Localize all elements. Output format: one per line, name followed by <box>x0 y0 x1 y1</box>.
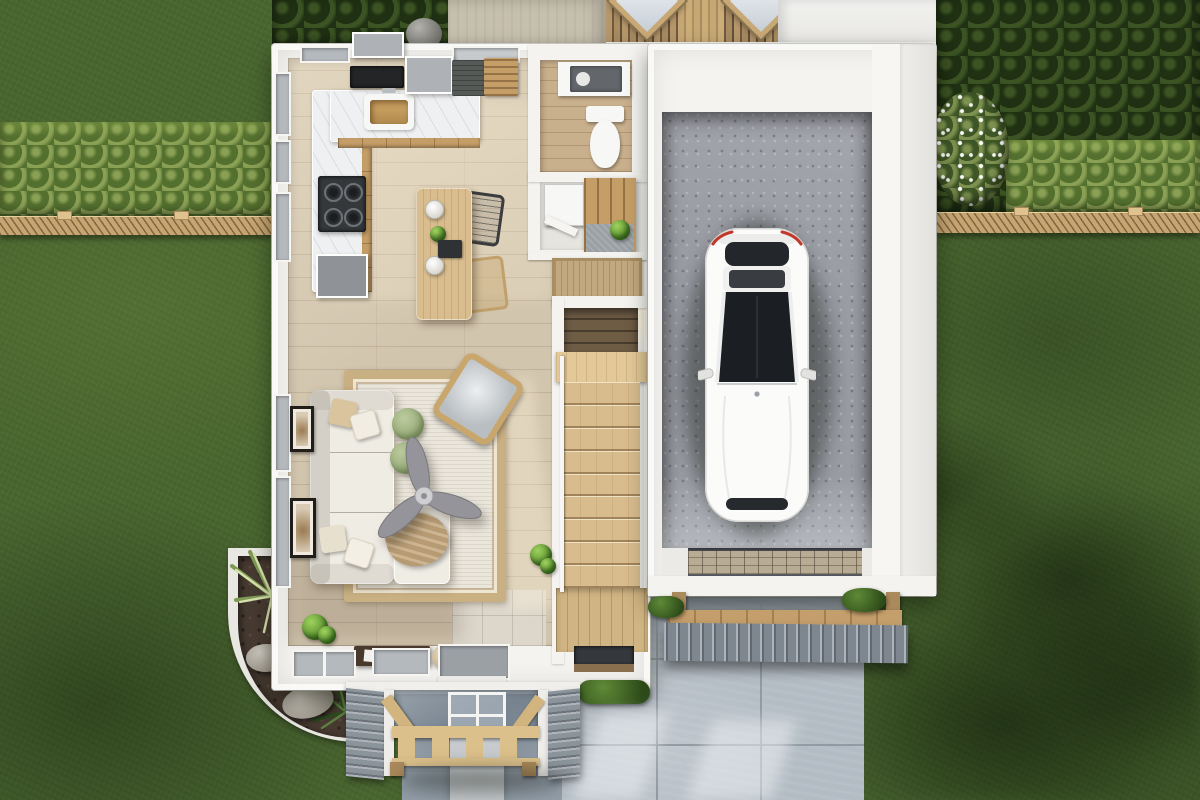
paver-joint <box>656 592 658 800</box>
garage-roof-overhang <box>900 44 936 596</box>
garage <box>648 44 936 596</box>
front-window <box>438 644 510 680</box>
front-window <box>292 650 356 678</box>
cabinet-face <box>338 138 480 148</box>
stair-tread <box>564 405 640 428</box>
garage-door-jamb <box>662 548 688 576</box>
flowering-bush <box>933 92 1009 206</box>
fence-post <box>57 211 72 220</box>
window <box>274 192 291 262</box>
table-tray <box>438 240 462 258</box>
porch-post <box>390 762 404 776</box>
awning-shrub <box>842 588 886 612</box>
throw-pillow <box>318 524 347 553</box>
awning-shrub <box>648 596 684 618</box>
fence-post <box>1014 207 1029 216</box>
range <box>350 66 404 88</box>
hedgerow-left <box>0 122 274 218</box>
skylight-gable <box>723 0 780 39</box>
window <box>274 72 291 136</box>
toilet-bowl <box>590 120 620 168</box>
truss-bottom-chord <box>392 758 540 766</box>
floor-plan-render <box>0 0 1200 800</box>
pendant-light <box>425 256 444 275</box>
wall-oven <box>316 254 368 298</box>
fence-left <box>0 216 274 235</box>
ceiling-fan <box>364 436 484 556</box>
porch-roof-left <box>346 688 384 780</box>
stair-tread <box>564 474 640 497</box>
hedgerow-right <box>1006 140 1200 214</box>
house <box>272 44 650 690</box>
range-hood <box>352 32 404 58</box>
front-door <box>574 646 634 666</box>
front-porch <box>346 680 580 780</box>
front-window <box>372 648 430 676</box>
stair-handrail <box>560 356 564 592</box>
garage-roof-edge <box>778 0 936 46</box>
fence-right <box>936 212 1200 233</box>
stair-tread <box>564 428 640 451</box>
fence-post <box>1128 207 1143 216</box>
stair-upper-flight <box>564 308 638 356</box>
porch-shadow <box>398 768 562 792</box>
stair-bottom-landing <box>556 588 648 652</box>
vanity-sink <box>576 72 590 86</box>
stair-tread <box>564 519 640 542</box>
rear-deck <box>606 0 780 46</box>
wall-art-frame <box>290 406 314 452</box>
stair-tread <box>564 565 640 588</box>
garage-door-panels <box>688 551 862 574</box>
stair-wall <box>552 296 650 308</box>
pendant-light <box>425 200 444 219</box>
stair-tread <box>564 382 640 405</box>
refrigerator <box>405 56 453 94</box>
wall-art-frame <box>290 498 316 558</box>
white-car <box>698 226 816 526</box>
truss-cutout-band <box>398 738 534 760</box>
sink-basin <box>370 100 408 124</box>
back-door-bench <box>484 58 518 96</box>
stair-tread <box>564 542 640 565</box>
back-patio <box>448 0 608 48</box>
window <box>274 476 291 588</box>
dining-table <box>416 188 472 320</box>
stair-tread <box>564 451 640 474</box>
stair-treads <box>564 382 640 588</box>
vanity-counter <box>570 66 622 92</box>
fence-post <box>174 211 189 220</box>
stair-plant <box>540 558 556 574</box>
garage-door-jamb <box>862 548 872 576</box>
stair-landing <box>556 352 648 382</box>
window <box>274 394 291 472</box>
gas-cooktop <box>318 176 366 232</box>
kitchen-sink <box>364 94 414 130</box>
sofa-arm <box>310 564 394 584</box>
garage-wall-right <box>872 44 900 596</box>
window <box>300 46 350 63</box>
awning-roof <box>664 623 908 664</box>
stair-tread <box>564 496 640 519</box>
window <box>274 140 291 184</box>
truss-top-chord <box>392 726 540 738</box>
faucet <box>382 88 396 93</box>
front-door-threshold <box>574 664 634 672</box>
porch-roof-right <box>548 688 580 779</box>
bench-plant <box>610 220 630 240</box>
foundation-hedge <box>578 680 650 704</box>
floor-plant <box>318 626 336 644</box>
skylight-gable <box>609 0 685 39</box>
